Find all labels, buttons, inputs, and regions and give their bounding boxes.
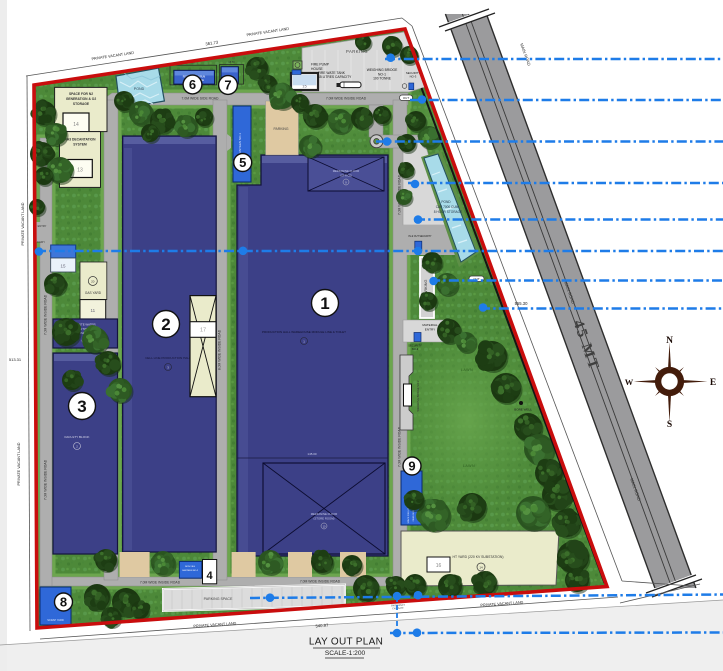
svg-text:ENTRY: ENTRY: [425, 327, 435, 331]
svg-text:7.0M WIDE INSIDE ROAD: 7.0M WIDE INSIDE ROAD: [300, 580, 341, 584]
svg-text:(STORE ROOM): (STORE ROOM): [314, 517, 335, 521]
svg-text:OUT: OUT: [403, 96, 410, 100]
svg-text:(OFFICE): (OFFICE): [340, 174, 352, 178]
svg-text:7.0M WIDE SIDE ROAD: 7.0M WIDE SIDE ROAD: [182, 97, 219, 101]
svg-text:PRIVATE VACANT LAND: PRIVATE VACANT LAND: [17, 442, 21, 485]
svg-text:LAWN: LAWN: [463, 464, 475, 468]
svg-text:3: 3: [77, 397, 86, 416]
svg-text:45 LITRES CAPACITY: 45 LITRES CAPACITY: [318, 75, 352, 79]
svg-text:CAP 7000 CUM: CAP 7000 CUM: [436, 205, 459, 209]
svg-text:8.0M WIDE INSIDE ROAD: 8.0M WIDE INSIDE ROAD: [218, 329, 222, 370]
svg-text:SECURITY: SECURITY: [408, 344, 422, 348]
svg-text:GENERATION & O2: GENERATION & O2: [66, 97, 97, 101]
svg-text:PARKING: PARKING: [273, 127, 288, 131]
svg-text:POND: POND: [441, 200, 451, 204]
svg-text:7.0M WIDE INSIDE ROAD: 7.0M WIDE INSIDE ROAD: [326, 97, 367, 101]
svg-text:9: 9: [408, 459, 415, 474]
svg-text:17: 17: [200, 328, 206, 334]
svg-text:15: 15: [60, 264, 66, 269]
svg-text:CANTEEN NO-1: CANTEEN NO-1: [238, 133, 242, 156]
svg-text:NH3 DECANTATION: NH3 DECANTATION: [64, 138, 96, 142]
svg-text:7: 7: [224, 78, 231, 93]
svg-text:SCRAP YARD: SCRAP YARD: [47, 618, 64, 622]
svg-text:5: 5: [239, 155, 246, 170]
svg-text:16: 16: [436, 563, 442, 569]
svg-text:FACULTY BLOCK: FACULTY BLOCK: [65, 435, 91, 439]
svg-text:STORAGE: STORAGE: [73, 102, 90, 106]
svg-text:SCALE-1:200: SCALE-1:200: [325, 650, 366, 657]
svg-text:100 TONNE: 100 TONNE: [373, 77, 392, 81]
svg-text:14: 14: [73, 122, 79, 128]
svg-text:W: W: [625, 377, 634, 387]
svg-text:WEIGHING BRIDGE NO-2: WEIGHING BRIDGE NO-2: [416, 380, 420, 412]
svg-text:CELL LINE PRODUCTION HALL: CELL LINE PRODUCTION HALL: [145, 356, 191, 360]
svg-text:7.0M WIDE INSIDE ROAD: 7.0M WIDE INSIDE ROAD: [44, 459, 48, 500]
svg-text:540.97: 540.97: [315, 623, 329, 629]
svg-text:CANTEEN NO-2: CANTEEN NO-2: [182, 569, 199, 572]
svg-text:HT YARD (220 KV SUBSTATION): HT YARD (220 KV SUBSTATION): [453, 555, 504, 559]
svg-text:NON VEG: NON VEG: [185, 566, 195, 568]
svg-text:MEZZANINE FLOOR: MEZZANINE FLOOR: [333, 169, 360, 173]
svg-text:SPACE FOR N2: SPACE FOR N2: [69, 92, 93, 96]
svg-text:E: E: [710, 378, 716, 388]
svg-text:513.31: 513.31: [9, 357, 22, 362]
svg-text:EXIT GATE: EXIT GATE: [392, 607, 404, 611]
svg-text:POND: POND: [134, 87, 145, 91]
svg-text:LAWN: LAWN: [461, 368, 473, 372]
svg-text:6: 6: [189, 77, 196, 92]
svg-text:8 HOUR STORAGE: 8 HOUR STORAGE: [434, 210, 462, 214]
svg-text:GAS YARD: GAS YARD: [85, 291, 102, 295]
svg-text:7.0M WIDE INSIDE ROAD: 7.0M WIDE INSIDE ROAD: [140, 581, 181, 585]
svg-text:13: 13: [77, 168, 83, 174]
svg-text:PARKING SPACE: PARKING SPACE: [204, 597, 233, 601]
svg-text:ENTRY: ENTRY: [38, 224, 47, 228]
svg-text:7.0M WIDE INSIDE ROAD: 7.0M WIDE INSIDE ROAD: [44, 294, 48, 335]
svg-text:PRODUCTION HALL WAREHOUSE MODU: PRODUCTION HALL WAREHOUSE MODULE LINE & …: [262, 330, 346, 334]
svg-text:4: 4: [207, 570, 214, 582]
svg-text:BORE WELL: BORE WELL: [514, 408, 532, 412]
svg-text:NO-2: NO-2: [412, 347, 419, 351]
svg-text:7.0M WIDE INSIDE ROAD: 7.0M WIDE INSIDE ROAD: [398, 426, 402, 467]
svg-text:2: 2: [161, 315, 170, 334]
svg-text:1: 1: [320, 294, 329, 313]
svg-text:8: 8: [60, 595, 67, 610]
svg-text:NO-3: NO-3: [410, 75, 417, 79]
svg-text:LAY OUT PLAN: LAY OUT PLAN: [309, 637, 383, 648]
svg-text:15: 15: [302, 84, 307, 89]
svg-text:18.50: 18.50: [228, 60, 235, 64]
svg-text:PRIVATE VACANT LAND: PRIVATE VACANT LAND: [21, 202, 25, 245]
svg-text:20: 20: [91, 280, 95, 284]
svg-text:S: S: [667, 420, 672, 430]
svg-text:145.00: 145.00: [307, 452, 317, 456]
svg-text:SYSTEM: SYSTEM: [73, 143, 87, 147]
svg-text:IN & OUT SECURITY: IN & OUT SECURITY: [408, 235, 431, 238]
svg-text:N: N: [666, 336, 673, 346]
svg-text:MEZZANINE FLOOR: MEZZANINE FLOOR: [311, 512, 338, 516]
svg-text:DAIRY: DAIRY: [37, 240, 45, 244]
svg-text:14: 14: [479, 566, 483, 570]
svg-text:555.30: 555.30: [515, 301, 528, 306]
svg-text:11: 11: [90, 308, 95, 313]
